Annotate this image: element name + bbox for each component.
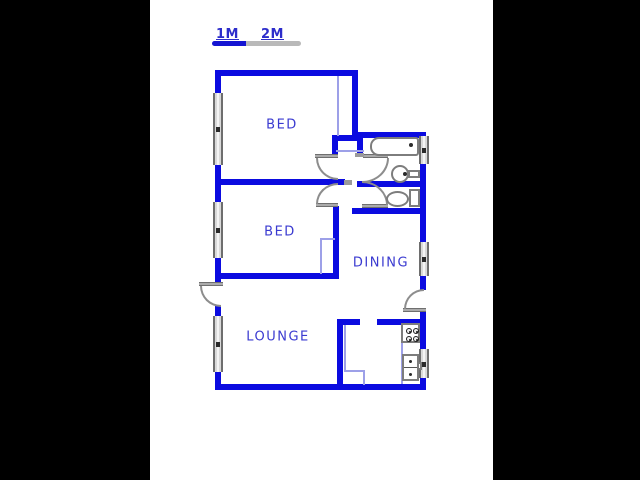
entrance-door-arc: [200, 286, 221, 307]
bath-sink-drain: [403, 172, 407, 176]
scale-label-1m: 1M: [216, 27, 239, 42]
stove-burner-icon: [413, 328, 419, 334]
wall: [337, 319, 343, 390]
door-jamb-cap: [355, 153, 364, 157]
thin-partition-line: [344, 370, 365, 372]
burner-dot: [409, 331, 411, 333]
stove-burner-icon: [413, 336, 419, 342]
burner-dot: [416, 339, 418, 341]
black-pillar: [493, 0, 640, 480]
scale-label-2m: 2M: [261, 27, 284, 42]
window-tick: [422, 148, 426, 153]
toilet-tank: [409, 189, 420, 207]
wall: [420, 275, 426, 290]
bed2-door-arc: [316, 183, 338, 204]
floor-plan-page: BEDBEDDININGLOUNGE 1M 2M: [0, 0, 640, 480]
wall: [420, 312, 426, 350]
burner-dot: [409, 339, 411, 341]
bathroom-door-arc: [362, 158, 389, 183]
door-jamb-cap: [344, 180, 352, 185]
kitchen-tap: [417, 362, 422, 370]
thin-partition-line: [363, 370, 365, 385]
sink-drain: [409, 360, 412, 363]
window-tick: [422, 362, 426, 367]
stove-burner-icon: [406, 328, 412, 334]
sink-drain: [409, 373, 412, 376]
wall: [352, 208, 426, 214]
bed1-door-arc: [316, 158, 338, 180]
window-bed2-left: [213, 202, 223, 258]
stove: [401, 323, 420, 343]
wall: [215, 179, 345, 185]
black-pillar: [0, 0, 150, 480]
wall: [352, 70, 358, 138]
bathtub-drain: [409, 143, 413, 147]
thin-partition-line: [337, 76, 339, 136]
room-label-bed-2: BED: [264, 225, 296, 240]
window-tick: [216, 127, 220, 132]
wall: [420, 163, 426, 243]
window-bath-right: [419, 136, 429, 164]
thin-partition-line: [344, 325, 346, 372]
wall: [333, 206, 339, 279]
wall: [215, 70, 221, 94]
room-label-bed-1: BED: [266, 118, 298, 133]
burner-dot: [416, 331, 418, 333]
thin-partition-line: [320, 238, 335, 240]
window-bed1-left: [213, 93, 223, 165]
stove-burner-icon: [406, 336, 412, 342]
window-tick: [422, 257, 426, 262]
room-label-lounge: LOUNGE: [246, 330, 310, 345]
backdoor-dining-arc: [404, 289, 424, 309]
toilet-bowl: [386, 191, 409, 207]
wall: [215, 384, 426, 390]
window-tick: [216, 342, 220, 347]
window-lounge-left: [213, 316, 223, 372]
room-label-dining: DINING: [353, 256, 409, 271]
bath-sink-tap: [408, 170, 420, 178]
wall: [420, 377, 426, 390]
window-dining-right: [419, 242, 429, 276]
sink-divider: [404, 367, 417, 368]
thin-partition-line: [320, 238, 322, 274]
window-tick: [216, 228, 220, 233]
wall: [215, 257, 221, 283]
thin-partition-line: [336, 150, 364, 152]
